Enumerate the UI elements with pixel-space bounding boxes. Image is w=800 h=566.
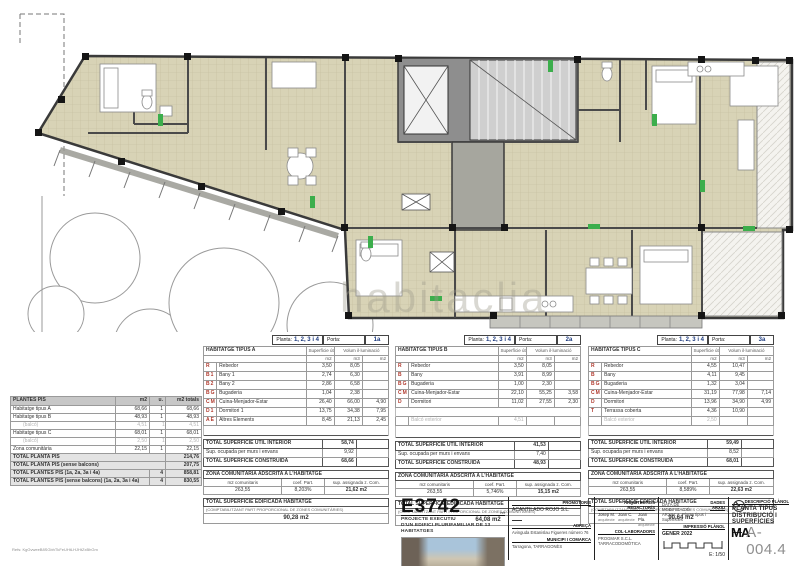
planta-porta-header: Planta:1, 2, 3 i 4 Porta: 3a (588, 335, 774, 345)
project-code-suffix: ref (500, 510, 505, 515)
dades-arxiu-label: DADES ARXIU (710, 500, 725, 511)
table-header: PLANTES PIS m2 u. m2 totals (11, 397, 202, 406)
total-row: TOTAL PLANTA PIS (sense balcons)207,75 (11, 462, 202, 470)
room-row: D1Dormitori 113,7534,387,95 (204, 408, 389, 417)
room-row: CMRCuina-Menjador-Estar31,1977,987,14 (589, 390, 774, 399)
collaborators-label: COL·LABORADORS (598, 529, 655, 535)
title-block-sheet: DESCRIPCIÓ PLÀNOL PLANTA TIPUS DISTRIBUC… (728, 497, 792, 560)
total-row: TOTAL PLANTA PIS214,76 (11, 454, 202, 462)
drawing-sheet: habitaclia PLANTES PIS m2 u. m2 totals H… (0, 0, 800, 566)
room-row: AEAltres Elements8,4521,132,45 (204, 417, 389, 426)
balco-row: Balcó exterior4,51 (396, 417, 581, 426)
scale-value: E: 1/50 (662, 552, 725, 558)
adreca-value: Avinguda Estanislau Figueres número 76 (512, 530, 591, 535)
impressio-label: IMPRESSIÓ PLÀNOL (662, 524, 725, 530)
total-row: TOTAL SUPERFÍCIE ÚTIL INTERIOR41,53 (396, 442, 581, 451)
architect-name: Joan C.arquitecte (618, 512, 635, 527)
site-photo (401, 537, 505, 566)
scale-bar (662, 540, 724, 550)
room-row: CMRCuina-Menjador-Estar26,4066,004,90 (204, 399, 389, 408)
total-row: TOTAL PLANTES PIS (1a, 2a, 3a i 4a)4858,… (11, 470, 202, 478)
room-row: B1Bany 12,746,30 (204, 372, 389, 381)
title-block-project: E3742 ref PROJECTE EXECUTIU D'UN EDIFICI… (398, 497, 508, 560)
watermark: habitaclia (340, 274, 547, 321)
title-block-promotor: PROMOTOR/S ACANTILADO ROJO S.L. ADREÇA A… (508, 497, 594, 560)
balco-row: Balcó exterior2,50 (589, 417, 774, 426)
room-row: B2Bany 22,866,58 (204, 381, 389, 390)
room-row: BGBugaderia1,002,30 (396, 381, 581, 390)
sheet-number: A-004.4 (746, 524, 790, 558)
corridor (452, 142, 504, 230)
room-row: BGBugaderia1,323,04 (589, 381, 774, 390)
collaborator-value: TARRACODOMÒTICA (598, 541, 655, 546)
project-code: E3742 (401, 498, 461, 515)
architects-label: ARQUITECTE/S REDACTOR/S (598, 500, 655, 511)
title-block-architects: ARQUITECTE/S REDACTOR/S Josep M.arquitec… (594, 497, 658, 560)
title-block-data: DATA DE MODIFICACIÓ DADES ARXIU ARXIU: A… (658, 497, 728, 560)
total-row: TOTAL SUPERFÍCIE CONSTRUÏDA68,66 (204, 458, 389, 467)
north-arrow-icon (732, 499, 746, 513)
room-row: BGBugaderia1,042,38 (204, 390, 389, 399)
spacer-row (204, 426, 389, 436)
zona-comunitaria-block: ZONA COMUNITÀRIA ADSCRITA A L'HABITATGE … (588, 470, 774, 495)
architect-name: Joan Pla.arquitecte (638, 512, 655, 527)
table-row: Habitatge tipus C68,01168,01 (11, 430, 202, 438)
zona-comunitaria-block: ZONA COMUNITÀRIA ADSCRITA A L'HABITATGE … (203, 470, 389, 495)
floor-plan: habitaclia (0, 0, 800, 332)
file-ref-text: Refs: KgGvweeB8SGbhTkFeUHtLHJHtZxBhGm (12, 547, 98, 552)
table-row: Sup. ocupada per murs i envans9,92 (204, 449, 389, 458)
promotor-value: ACANTILADO ROJO S.L. (512, 507, 591, 513)
table-title-row: HABITATGE TIPUS CSuperfície útilVolum il… (589, 347, 774, 356)
architect-name: Josep M.arquitecte (598, 512, 615, 527)
project-title: D'UN EDIFICI PLURIFAMILIAR DE 13 (401, 523, 505, 528)
edificada-block: TOTAL SUPERFÍCIE EDIFICADA HABITATGE (CO… (203, 498, 389, 524)
adreca-label: ADREÇA (512, 523, 591, 529)
table-row: (balcó)2,5012,50 (11, 438, 202, 446)
divider (512, 515, 522, 521)
print-date: GENER 2022 (662, 531, 725, 537)
room-row: RRebedor3,508,05 (396, 363, 581, 372)
room-row: CMRCuina-Menjador-Estar22,1055,253,58 (396, 390, 581, 399)
room-row: BBany4,119,45 (589, 372, 774, 381)
planta-porta-header: Planta:1, 2, 3 i 4 Porta: 1a (203, 335, 389, 345)
municipi-value: Tarragona, TARRAGONÈS (512, 544, 591, 549)
table-title-row: HABITATGE TIPUS ASuperfície útilVolum il… (204, 347, 389, 356)
total-row: TOTAL SUPERFÍCIE CONSTRUÏDA68,01 (589, 458, 774, 467)
spacer-row (396, 408, 581, 417)
total-row: TOTAL SUPERFÍCIE ÚTIL INTERIOR58,74 (204, 440, 389, 449)
units-row: m2m3m2 (589, 356, 774, 363)
room-row: RRebedor3,508,05 (204, 363, 389, 372)
municipi-label: MUNICIPI I COMARCA (512, 537, 591, 543)
total-row: TOTAL SUPERFÍCIE CONSTRUÏDA48,93 (396, 460, 581, 469)
title-block: E3742 ref PROJECTE EXECUTIU D'UN EDIFICI… (398, 497, 792, 560)
planta-porta-header: Planta:1, 2, 3 i 4 Porta: 2a (395, 335, 581, 345)
promotor-label: PROMOTOR/S (512, 500, 591, 506)
table-row: Sup. ocupada per murs i envans8,52 (589, 449, 774, 458)
table-title-row: HABITATGE TIPUS BSuperfície útilVolum il… (396, 347, 581, 356)
modification-label: DATA DE MODIFICACIÓ (662, 502, 706, 512)
room-row: RRebedor4,5510,47 (589, 363, 774, 372)
plantes-pis-table: PLANTES PIS m2 u. m2 totals Habitatge ti… (10, 396, 201, 486)
table-row: Habitatge tipus A68,66168,66 (11, 406, 202, 414)
total-row: TOTAL SUPERFÍCIE ÚTIL INTERIOR59,49 (589, 440, 774, 449)
project-title: HABITATGES (401, 529, 505, 534)
room-row: DDormitori11,0227,552,30 (396, 399, 581, 408)
table-row: (balcó)4,5114,51 (11, 422, 202, 430)
spacer-row (396, 426, 581, 438)
table-habitatge-a: Planta:1, 2, 3 i 4 Porta: 1a HABITATGE T… (203, 335, 389, 524)
spacer-row (589, 426, 774, 436)
room-row: BBany3,918,99 (396, 372, 581, 381)
terrace-bottom-right (702, 232, 782, 316)
units-row: m2m3m2 (204, 356, 389, 363)
project-title: PROJECTE EXECUTIU (401, 517, 505, 522)
table-row: Sup. ocupada per murs i envans7,40 (396, 451, 581, 460)
zona-comunitaria-block: ZONA COMUNITÀRIA ADSCRITA A L'HABITATGE … (395, 472, 581, 497)
room-row: DDormitori13,9634,904,99 (589, 399, 774, 408)
arxiu-line: ARXIU: A. Planta tipus i Superfícies (662, 512, 725, 522)
total-row: TOTAL PLANTES PIS (sense balcons) (1a, 2… (11, 478, 202, 486)
room-row: TTerrassa coberta4,3610,90 (589, 408, 774, 417)
table-row: Habitatge tipus B48,93148,93 (11, 414, 202, 422)
table-row: Zona comunitària22,15122,15 (11, 446, 202, 454)
table-habitatge-c: Planta:1, 2, 3 i 4 Porta: 3a HABITATGE T… (588, 335, 774, 524)
units-row: m2m3m2 (396, 356, 581, 363)
